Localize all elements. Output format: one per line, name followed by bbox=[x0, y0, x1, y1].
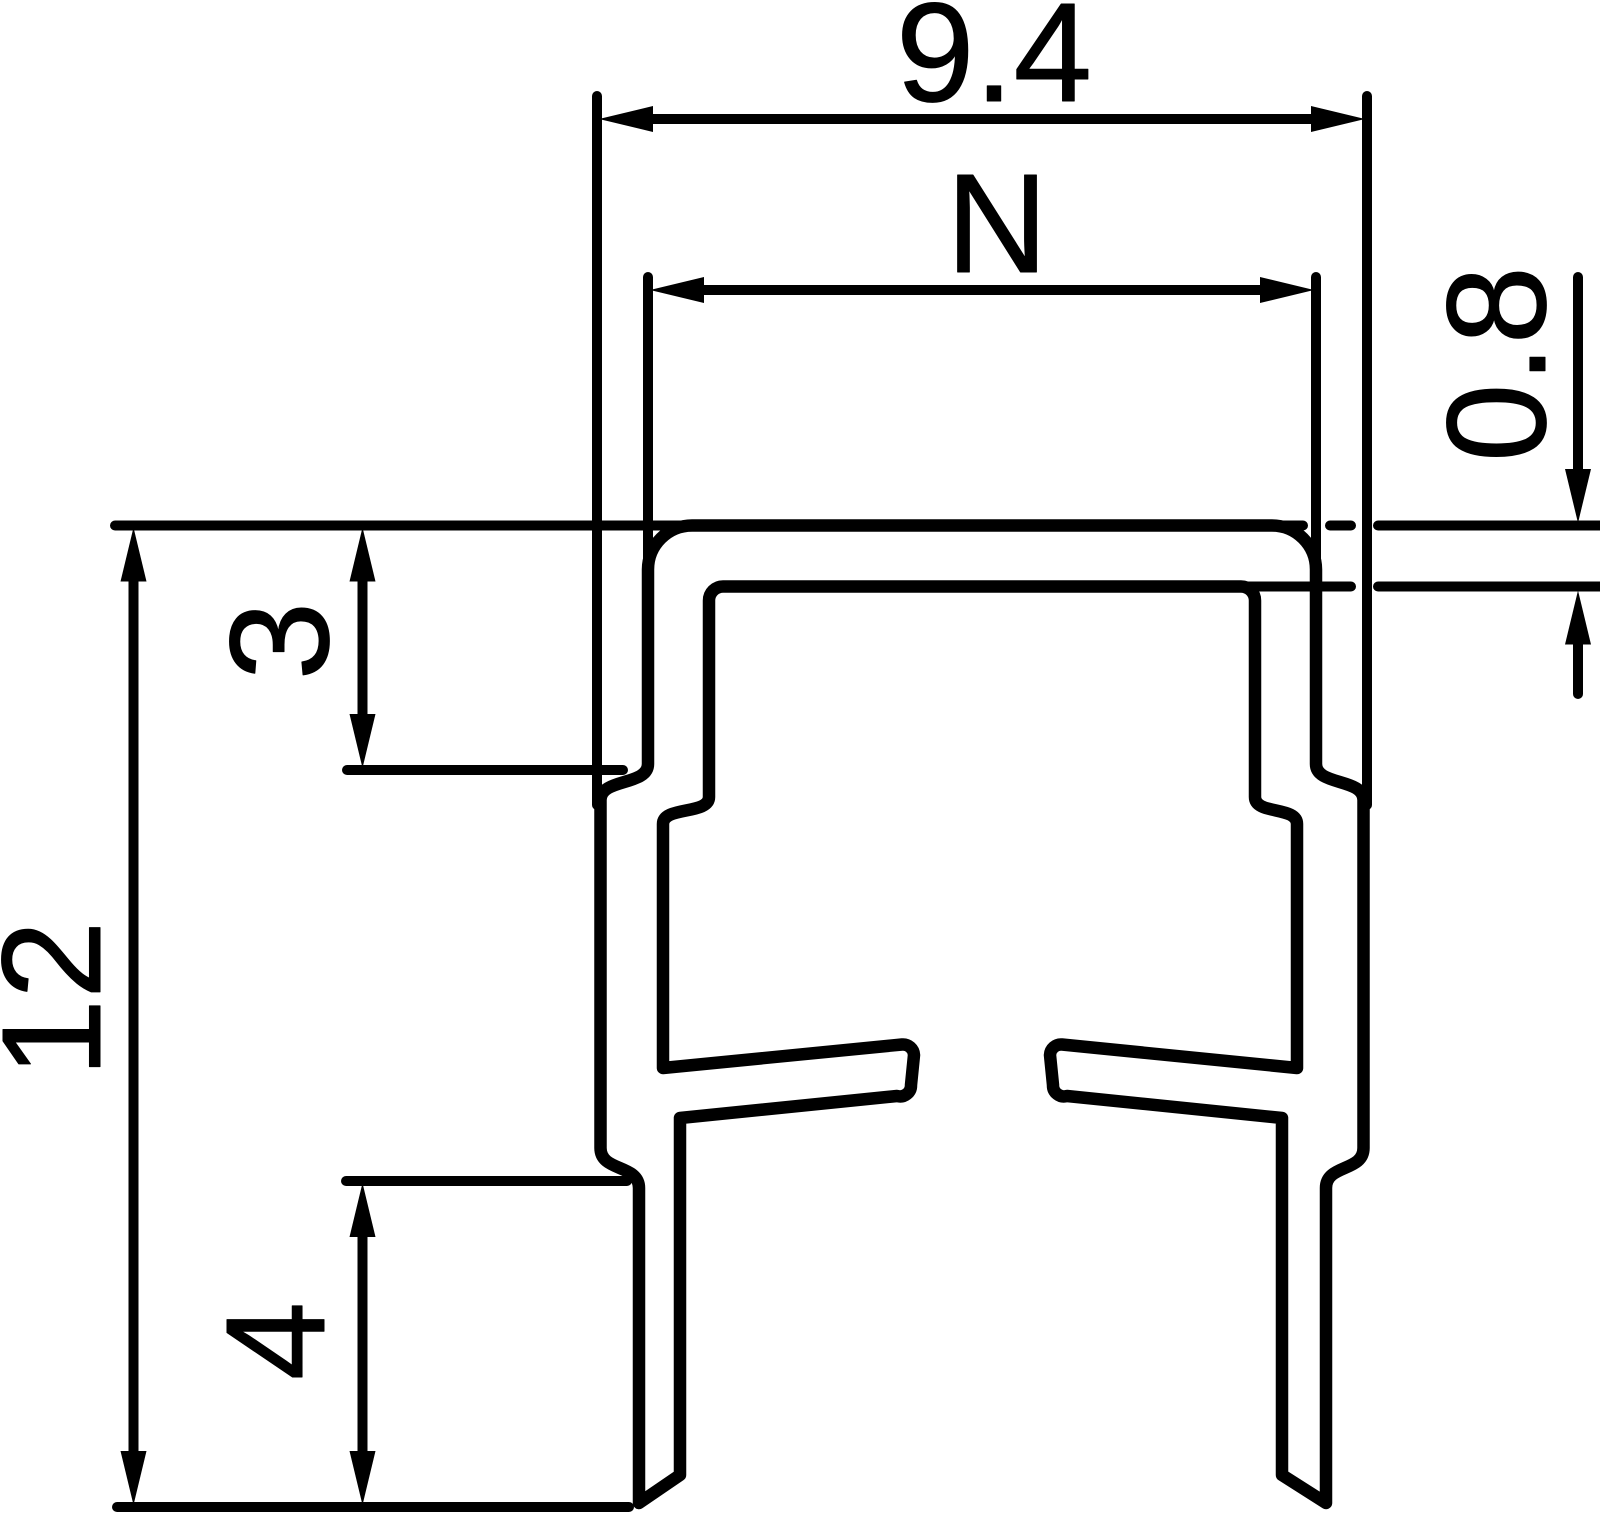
svg-text:0.8: 0.8 bbox=[1417, 266, 1575, 462]
svg-text:4: 4 bbox=[196, 1302, 354, 1380]
svg-text:N: N bbox=[946, 144, 1048, 302]
svg-text:12: 12 bbox=[0, 921, 130, 1078]
svg-text:3: 3 bbox=[200, 602, 358, 680]
svg-text:9.4: 9.4 bbox=[896, 0, 1092, 131]
